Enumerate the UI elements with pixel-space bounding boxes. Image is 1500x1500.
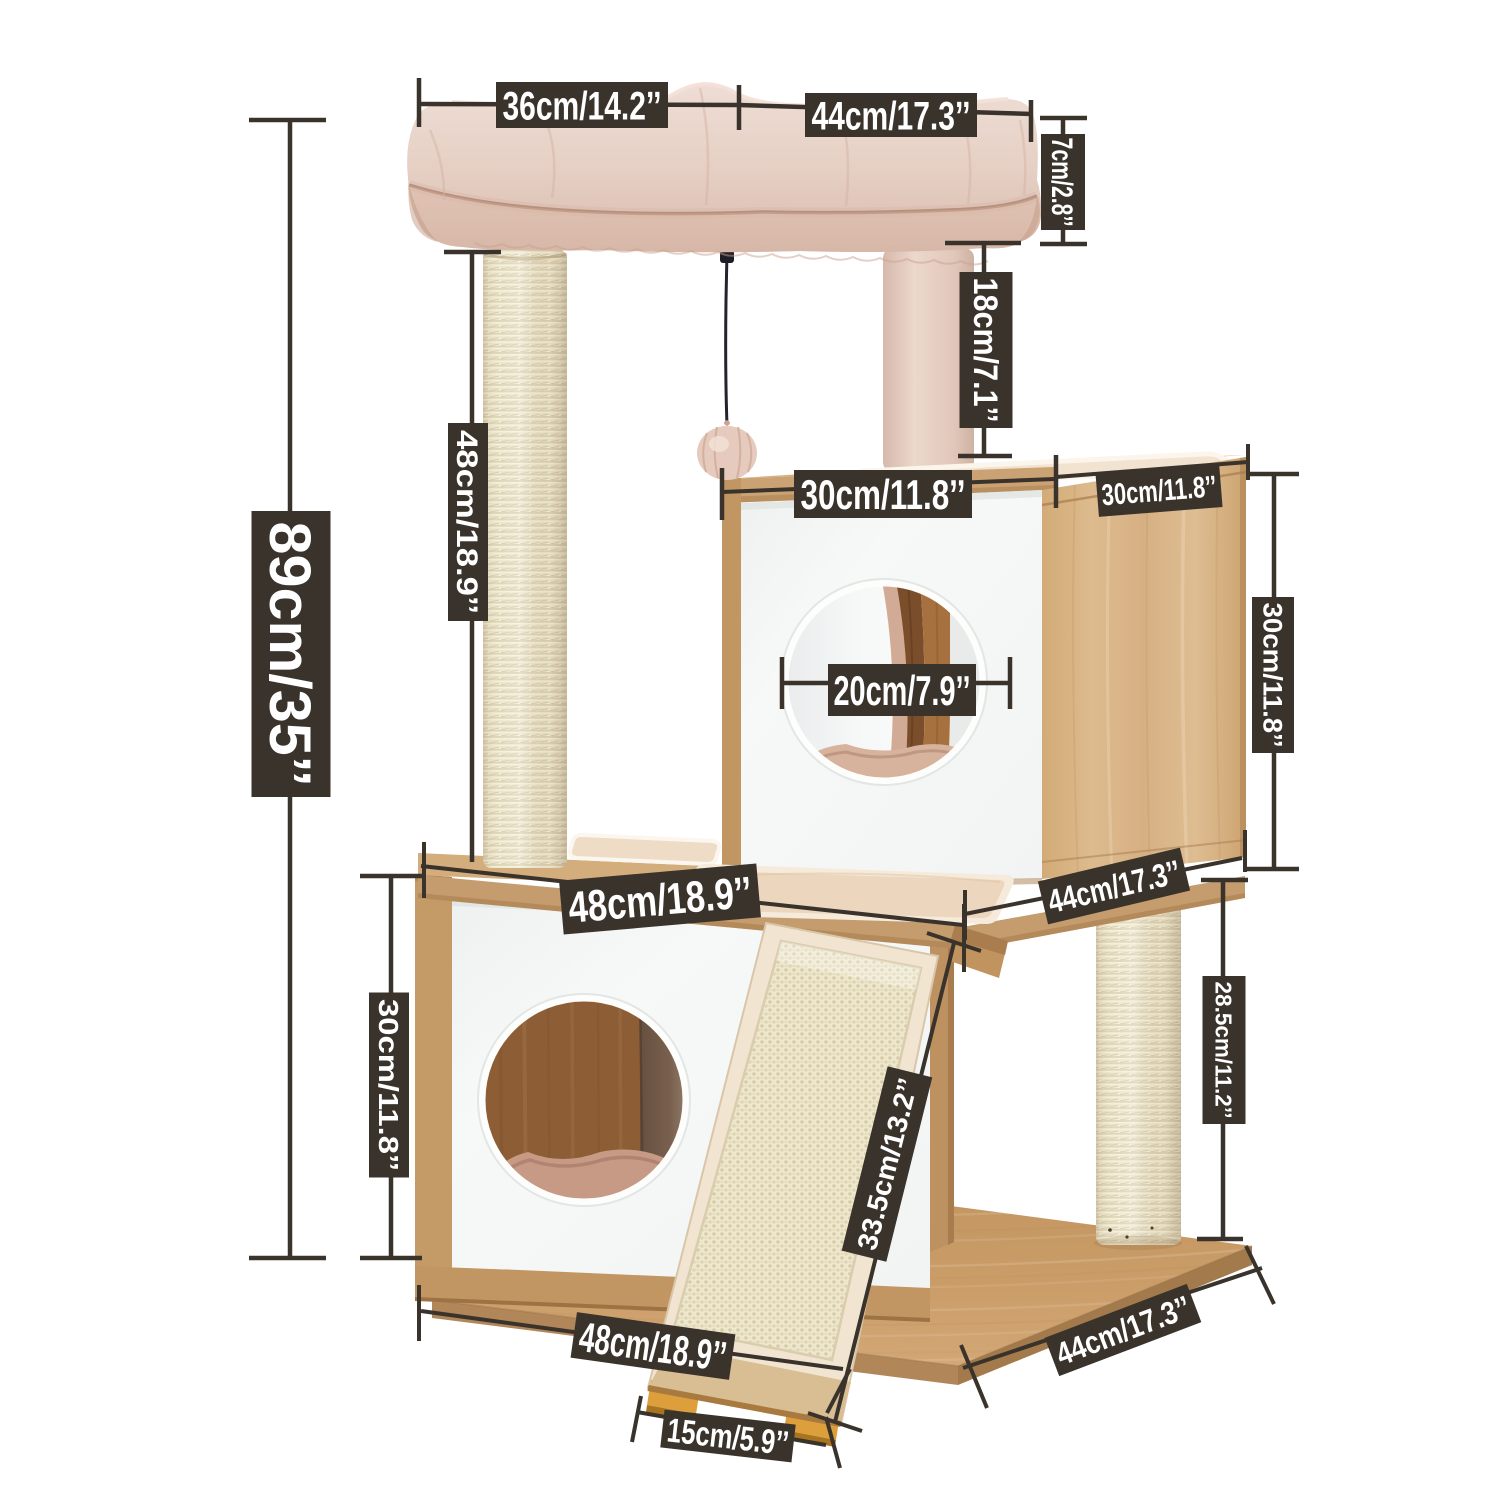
svg-text:30cm/11.8’’: 30cm/11.8’’ [373, 999, 404, 1171]
svg-text:28.5cm/11.2’’: 28.5cm/11.2’’ [1211, 982, 1237, 1119]
svg-text:7cm/2.8’’: 7cm/2.8’’ [1045, 138, 1078, 227]
svg-text:30cm/11.8’’: 30cm/11.8’’ [801, 471, 966, 518]
svg-text:89cm/35’’: 89cm/35’’ [257, 522, 322, 787]
svg-text:44cm/17.3’’: 44cm/17.3’’ [812, 94, 971, 138]
svg-text:36cm/14.2’’: 36cm/14.2’’ [503, 84, 662, 128]
svg-text:48cm/18.9’’: 48cm/18.9’’ [450, 430, 483, 614]
svg-text:18cm/7.1’’: 18cm/7.1’’ [966, 278, 1004, 423]
svg-text:30cm/11.8’’: 30cm/11.8’’ [1257, 603, 1287, 748]
svg-text:20cm/7.9’’: 20cm/7.9’’ [834, 667, 971, 714]
